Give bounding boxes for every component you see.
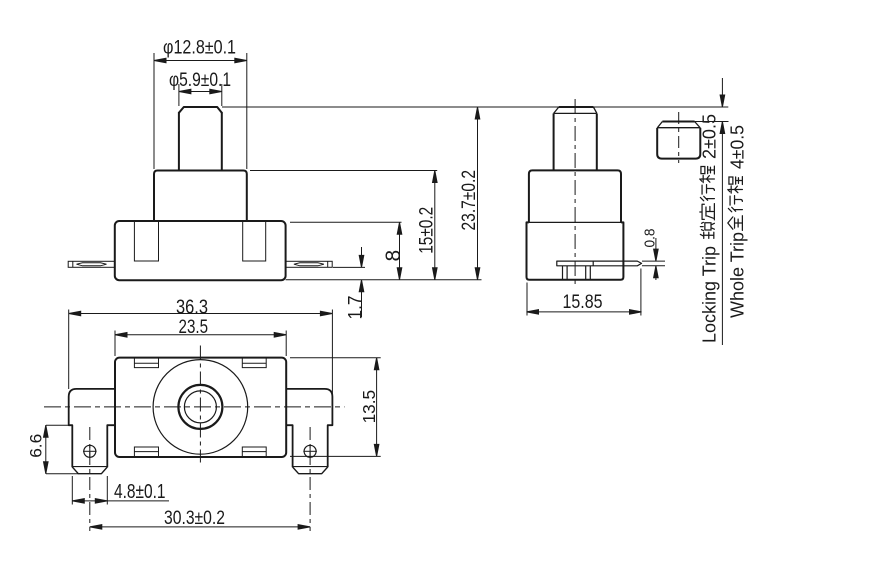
svg-text:30.3±0.2: 30.3±0.2 (164, 507, 225, 529)
svg-text:2±0.5: 2±0.5 (700, 114, 720, 159)
svg-text:1.7: 1.7 (346, 296, 367, 320)
svg-text:Locking Trip: Locking Trip (700, 246, 720, 343)
svg-text:15.85: 15.85 (563, 292, 603, 313)
svg-text:φ5.9±0.1: φ5.9±0.1 (169, 70, 231, 91)
svg-text:4.8±0.1: 4.8±0.1 (114, 481, 166, 503)
svg-text:8: 8 (382, 250, 405, 262)
svg-text:0.8: 0.8 (642, 229, 658, 248)
svg-text:23.5: 23.5 (179, 316, 209, 338)
svg-text:φ12.8±0.1: φ12.8±0.1 (163, 38, 236, 59)
svg-text:15±0.2: 15±0.2 (416, 207, 437, 254)
svg-text:Whole Trip: Whole Trip (728, 232, 748, 318)
svg-text:23.7±0.2: 23.7±0.2 (459, 170, 480, 231)
svg-text:13.5: 13.5 (359, 390, 379, 424)
svg-text:4±0.5: 4±0.5 (728, 125, 748, 169)
svg-text:36.3: 36.3 (176, 297, 208, 319)
svg-text:6.6: 6.6 (26, 434, 45, 458)
